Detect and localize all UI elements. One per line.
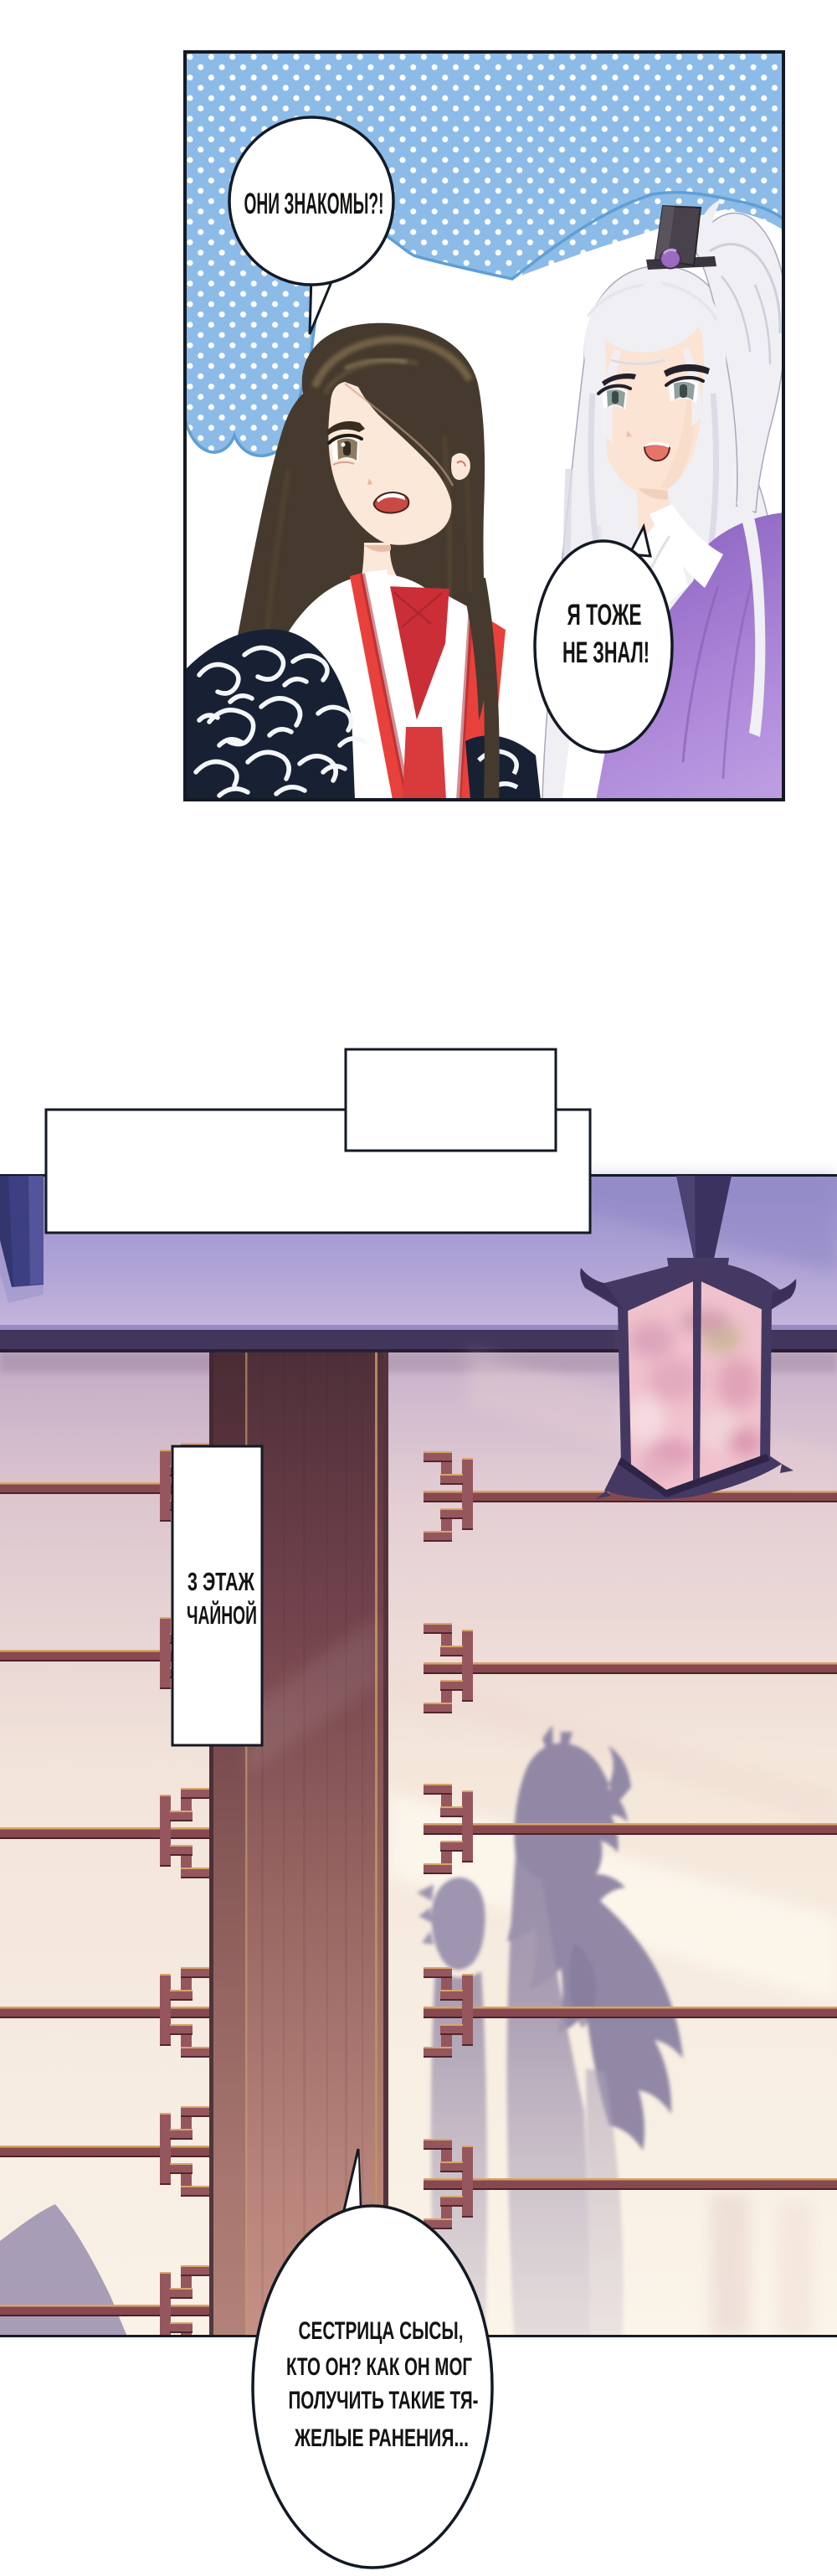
svg-text:3 ЭТАЖ: 3 ЭТАЖ (187, 1567, 255, 1596)
svg-text:ЖЕЛЫЕ РАНЕНИЯ...: ЖЕЛЫЕ РАНЕНИЯ... (294, 2424, 469, 2452)
svg-text:ЧАЙНОЙ: ЧАЙНОЙ (187, 1600, 257, 1630)
svg-text:КТО ОН? КАК ОН МОГ: КТО ОН? КАК ОН МОГ (286, 2353, 472, 2381)
svg-text:ПОЛУЧИТЬ ТАКИЕ ТЯ-: ПОЛУЧИТЬ ТАКИЕ ТЯ- (289, 2387, 479, 2414)
svg-text:ОНИ ЗНАКОМЫ?!: ОНИ ЗНАКОМЫ?! (244, 188, 384, 220)
svg-text:Я ТОЖЕ: Я ТОЖЕ (567, 599, 642, 631)
svg-text:СЕСТРИЦА СЫСЫ,: СЕСТРИЦА СЫСЫ, (299, 2317, 464, 2345)
svg-text:НЕ ЗНАЛ!: НЕ ЗНАЛ! (562, 636, 650, 669)
